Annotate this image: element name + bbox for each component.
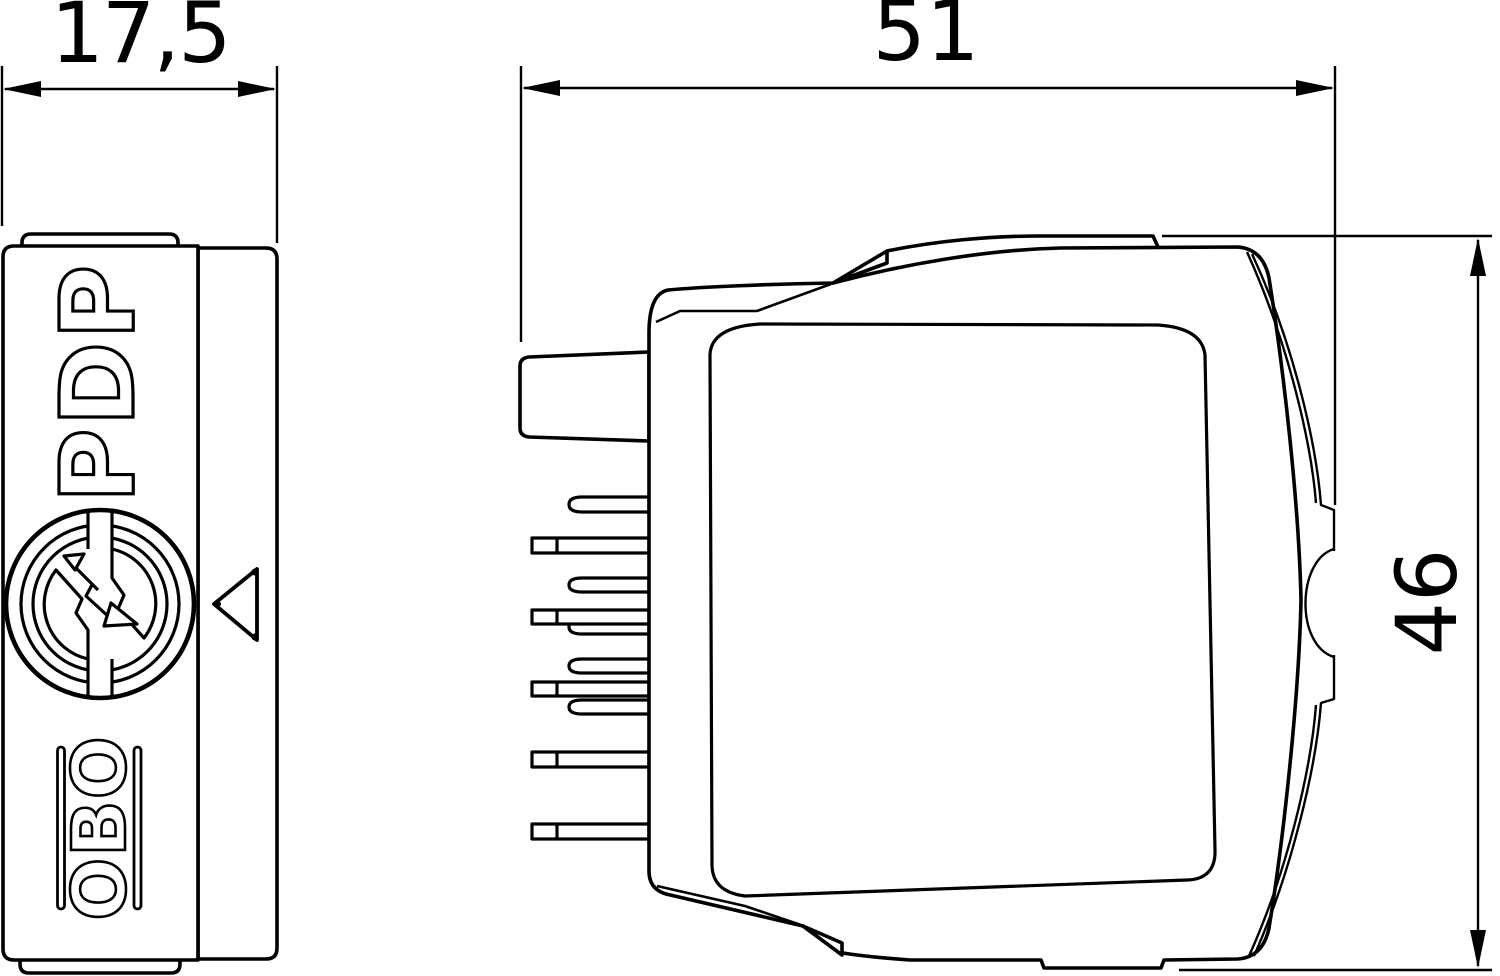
pin <box>569 659 649 673</box>
label-recess <box>710 324 1215 896</box>
dimension-17-5 <box>2 66 277 243</box>
pin <box>569 578 649 592</box>
drawing-linework <box>0 0 1500 976</box>
arrowhead-right <box>1296 80 1334 96</box>
product-label: PDP <box>44 238 154 528</box>
pin <box>532 610 649 624</box>
logo-slot <box>88 514 113 694</box>
arrowhead-right <box>238 81 276 97</box>
dimension-label-front-width: 17,5 <box>20 0 260 75</box>
pin <box>532 824 649 839</box>
grip-dimple <box>1305 549 1334 657</box>
arrowhead-top <box>1470 238 1486 276</box>
pin <box>532 538 649 553</box>
pin <box>532 682 649 696</box>
brand-label: OBO <box>57 723 143 933</box>
side-view <box>520 236 1334 968</box>
arrowhead-left <box>3 81 41 97</box>
arrowhead-bottom <box>1470 930 1486 968</box>
dimension-label-side-width: 51 <box>826 0 1026 73</box>
dimension-label-side-height: 46 <box>1367 517 1487 687</box>
pin <box>569 497 649 512</box>
arrowhead-left <box>522 80 560 96</box>
mounting-lug <box>520 352 649 441</box>
pin <box>532 752 649 767</box>
surge-arrester-logo-icon <box>6 510 194 698</box>
pin <box>569 700 649 714</box>
technical-drawing-canvas: 17,5 51 46 PDP OBO <box>0 0 1500 976</box>
